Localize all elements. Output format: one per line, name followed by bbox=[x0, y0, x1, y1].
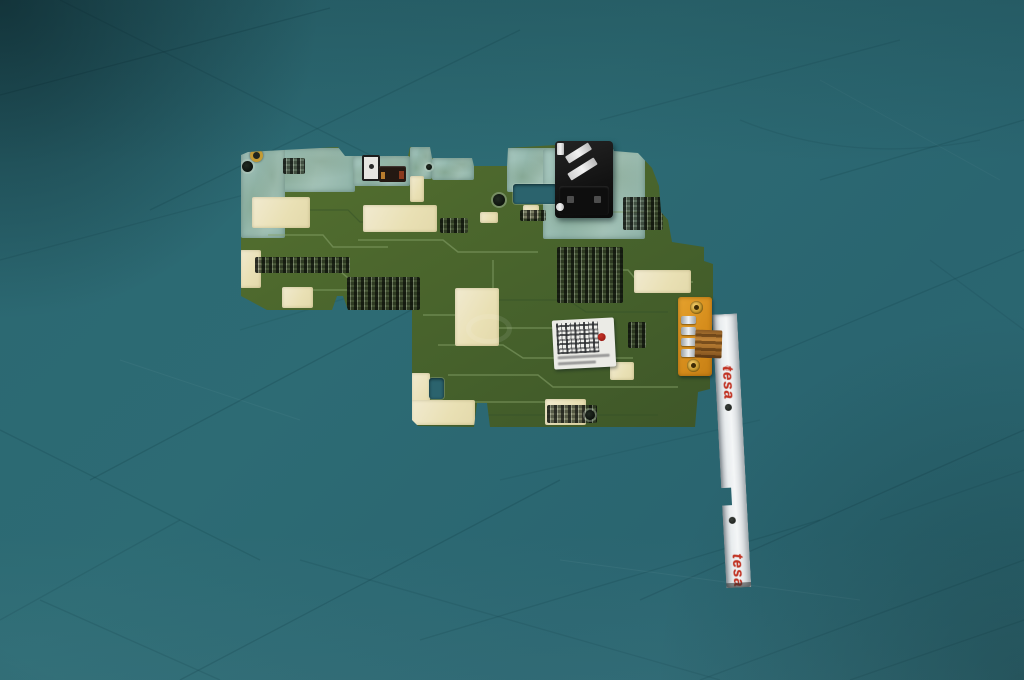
smd-component-cluster bbox=[440, 218, 468, 233]
photo-scene: tesa® tesa bbox=[0, 0, 1024, 680]
microphone-component bbox=[362, 155, 380, 181]
connector-screw bbox=[690, 301, 703, 314]
label-text-line bbox=[558, 360, 596, 365]
screw-hole bbox=[426, 164, 432, 170]
jack-metal-tab bbox=[556, 203, 564, 211]
small-board-connector bbox=[379, 166, 406, 182]
smd-component-cluster bbox=[557, 247, 623, 303]
smd-component-cluster bbox=[255, 257, 350, 273]
smd-component-cluster bbox=[520, 210, 546, 221]
microphone-port bbox=[369, 164, 374, 169]
solder-pad bbox=[282, 287, 313, 308]
qr-code bbox=[556, 321, 600, 354]
smd-component-cluster bbox=[347, 277, 420, 310]
screw-center bbox=[691, 363, 696, 368]
smd-component-cluster bbox=[283, 158, 305, 174]
copper-flex bbox=[695, 330, 723, 359]
smd-component-cluster bbox=[623, 197, 663, 230]
connector-pin-silver bbox=[681, 327, 696, 335]
screw-hole bbox=[242, 161, 253, 172]
smd-component-cluster bbox=[628, 322, 646, 348]
red-inspection-dot bbox=[597, 333, 605, 341]
label-text-line bbox=[558, 354, 610, 360]
registered-mark: ® bbox=[724, 366, 731, 373]
connector-screw bbox=[687, 359, 700, 372]
watermark-ghost bbox=[466, 314, 512, 344]
strip-hole bbox=[729, 517, 736, 524]
solder-pad bbox=[252, 197, 310, 228]
screw-hole bbox=[493, 194, 505, 206]
board-cutout-slot bbox=[429, 378, 444, 399]
jack-contact-pad bbox=[567, 196, 574, 203]
tesa-brand-text: tesa® bbox=[715, 365, 740, 366]
connector-pin bbox=[399, 171, 404, 179]
screw-center bbox=[694, 305, 699, 310]
connector-pin-silver bbox=[681, 338, 696, 346]
solder-pad bbox=[634, 270, 691, 293]
strip-hole bbox=[725, 404, 732, 411]
solder-pad bbox=[410, 176, 424, 202]
jack-body-lower bbox=[559, 186, 609, 215]
tesa-brand-text-bottom: tesa bbox=[725, 553, 750, 554]
connector-pin-silver bbox=[681, 316, 696, 324]
screw-hole bbox=[585, 410, 595, 420]
solder-pad bbox=[480, 212, 498, 223]
headphone-jack bbox=[555, 141, 613, 218]
barcode-label bbox=[552, 317, 616, 369]
jack-spring-contact bbox=[557, 143, 564, 155]
solder-pad bbox=[363, 205, 437, 232]
board-cutout-slot bbox=[513, 184, 557, 204]
solder-pad bbox=[411, 400, 475, 425]
jack-contact-pad bbox=[594, 196, 601, 203]
connector-pin bbox=[381, 172, 385, 179]
